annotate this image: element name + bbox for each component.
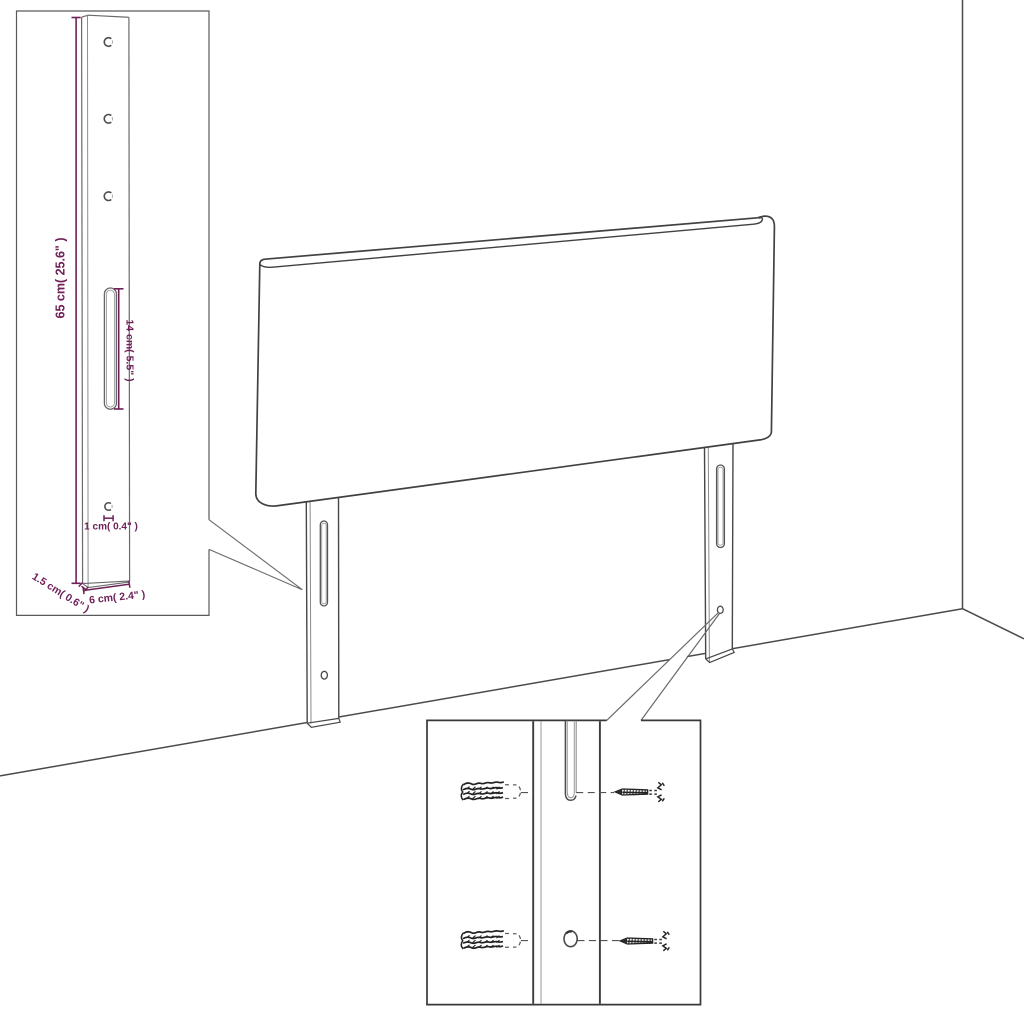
svg-text:14 cm( 5.5" ): 14 cm( 5.5" )	[124, 319, 136, 381]
svg-text:1 cm( 0.4" ): 1 cm( 0.4" )	[84, 522, 138, 533]
svg-text:65 cm( 25.6" ): 65 cm( 25.6" )	[54, 238, 68, 319]
